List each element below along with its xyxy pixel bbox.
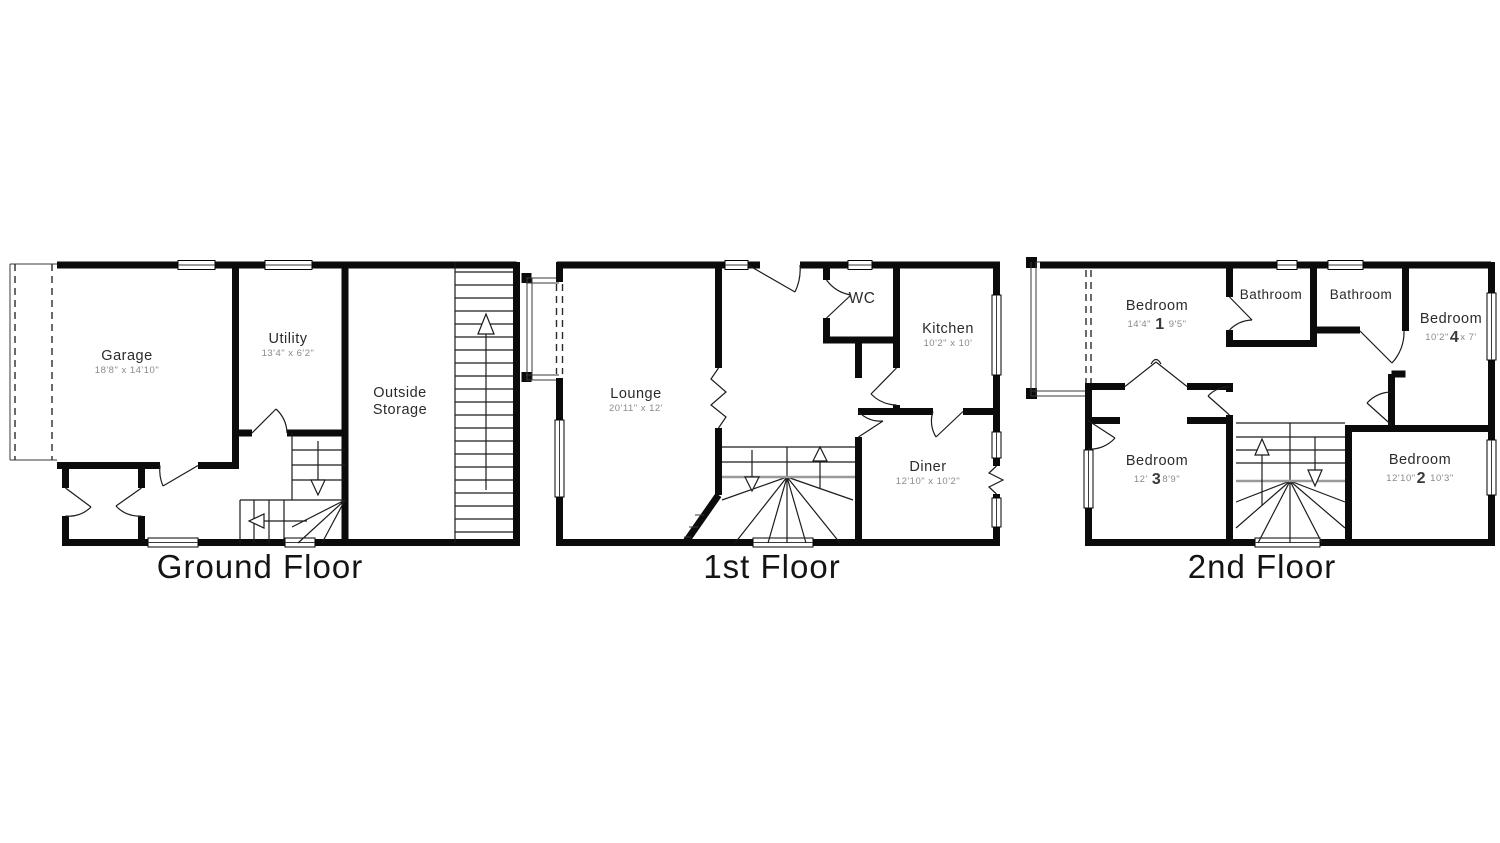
external-stairs [455,262,513,543]
room-label-utility: Utility 13'4" x 6'2" [262,331,315,360]
room-label-lounge: Lounge 20'11" x 12' [609,386,663,415]
garage-door-dashed-outline [10,264,57,460]
up-arrow-icon [1255,439,1269,455]
first-floor-title: 1st Floor [703,548,840,586]
first-floor-plan [520,250,1020,550]
hall-stairs [240,433,345,543]
ground-walls [57,262,520,546]
room-label-bedroom-1: Bedroom 14'4" 1 9'5" [1126,298,1188,334]
room-label-kitchen: Kitchen 10'2" x 10' [922,321,974,350]
second-walls [1040,262,1492,546]
bay-window [1026,257,1091,399]
ground-floor-plan [0,250,520,550]
room-label-wc: WC [849,290,876,308]
room-label-outside-storage: Outside Storage [373,385,427,418]
room-label-bathroom-1: Bathroom [1240,287,1303,303]
room-label-bedroom-4: Bedroom 10'2"4x 7' [1420,311,1482,347]
second-stairs [1236,423,1345,543]
down-arrow-icon [1308,470,1322,486]
first-stairs [684,447,855,543]
ground-windows [148,261,315,548]
up-arrow-icon [813,447,827,461]
double-door [1125,360,1187,387]
down-arrow-icon [311,480,325,495]
down-arrow-icon [745,477,759,491]
bay-window [522,273,563,382]
ground-floor-title: Ground Floor [157,548,363,586]
room-label-diner: Diner 12'10" x 10'2" [896,459,960,488]
left-arrow-icon [249,514,264,528]
floorplan-sheet: Garage 18'8" x 14'10" Utility 13'4" x 6'… [0,0,1500,843]
room-label-bedroom-3: Bedroom 12' 38'9" [1126,453,1188,489]
second-floor-title: 2nd Floor [1188,548,1336,586]
room-label-garage: Garage 18'8" x 14'10" [95,348,159,377]
room-label-bedroom-2: Bedroom 12'10"2 10'3" [1386,452,1453,488]
room-label-bathroom-2: Bathroom [1330,287,1393,303]
